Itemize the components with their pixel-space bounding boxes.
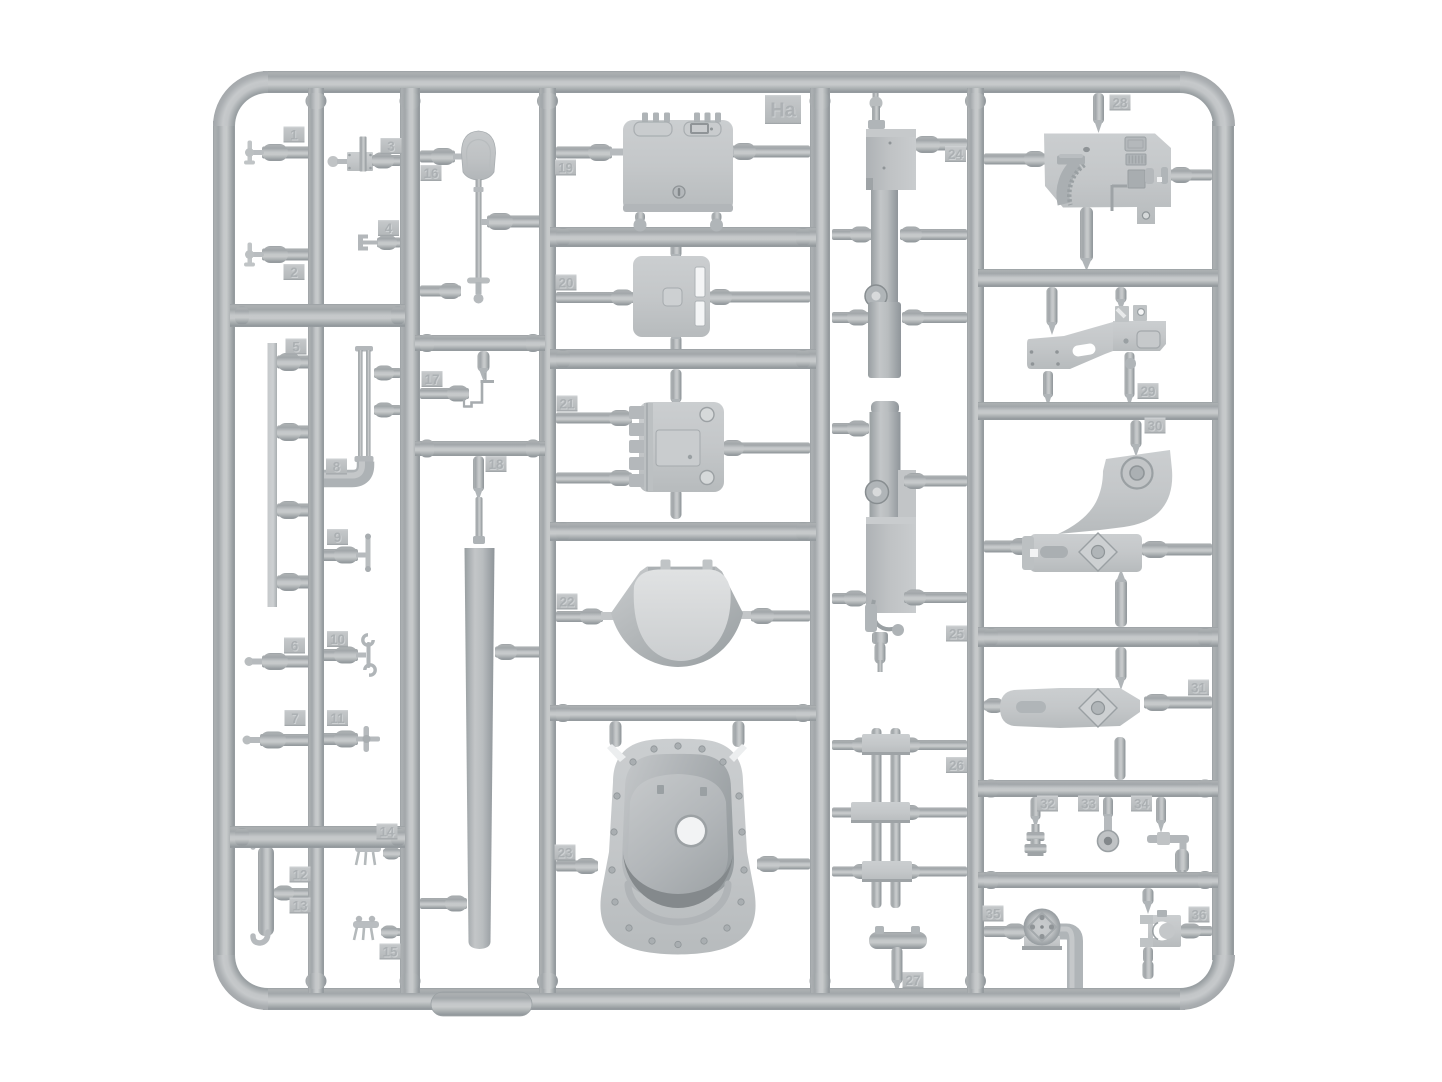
svg-text:Ha: Ha xyxy=(770,100,796,122)
svg-text:18: 18 xyxy=(488,457,504,472)
svg-text:1: 1 xyxy=(290,127,298,142)
svg-text:4: 4 xyxy=(385,221,393,236)
svg-text:28: 28 xyxy=(1112,95,1128,110)
svg-text:5: 5 xyxy=(292,339,300,354)
svg-text:16: 16 xyxy=(423,166,439,181)
svg-text:32: 32 xyxy=(1040,796,1055,811)
svg-text:29: 29 xyxy=(1140,384,1155,399)
svg-text:27: 27 xyxy=(905,973,920,988)
svg-text:11: 11 xyxy=(330,711,345,726)
svg-text:13: 13 xyxy=(292,898,308,913)
svg-text:34: 34 xyxy=(1134,796,1150,811)
svg-text:15: 15 xyxy=(382,944,398,959)
svg-text:10: 10 xyxy=(330,632,345,647)
svg-text:7: 7 xyxy=(291,711,299,726)
svg-text:12: 12 xyxy=(292,867,307,882)
svg-text:24: 24 xyxy=(948,147,964,162)
svg-text:36: 36 xyxy=(1191,907,1207,922)
svg-text:6: 6 xyxy=(291,638,299,653)
svg-text:3: 3 xyxy=(387,139,395,154)
svg-text:26: 26 xyxy=(949,758,965,773)
svg-text:22: 22 xyxy=(559,594,574,609)
svg-text:21: 21 xyxy=(559,396,575,411)
svg-text:19: 19 xyxy=(558,160,573,175)
svg-text:14: 14 xyxy=(379,824,395,839)
svg-text:8: 8 xyxy=(333,459,341,474)
svg-text:25: 25 xyxy=(949,626,965,641)
svg-text:2: 2 xyxy=(290,265,298,280)
svg-text:9: 9 xyxy=(334,530,342,545)
svg-text:17: 17 xyxy=(424,372,439,387)
svg-text:20: 20 xyxy=(558,275,573,290)
svg-text:23: 23 xyxy=(557,845,573,860)
svg-text:35: 35 xyxy=(985,906,1001,921)
svg-text:30: 30 xyxy=(1147,418,1162,433)
svg-text:31: 31 xyxy=(1191,680,1207,695)
svg-text:33: 33 xyxy=(1081,796,1097,811)
